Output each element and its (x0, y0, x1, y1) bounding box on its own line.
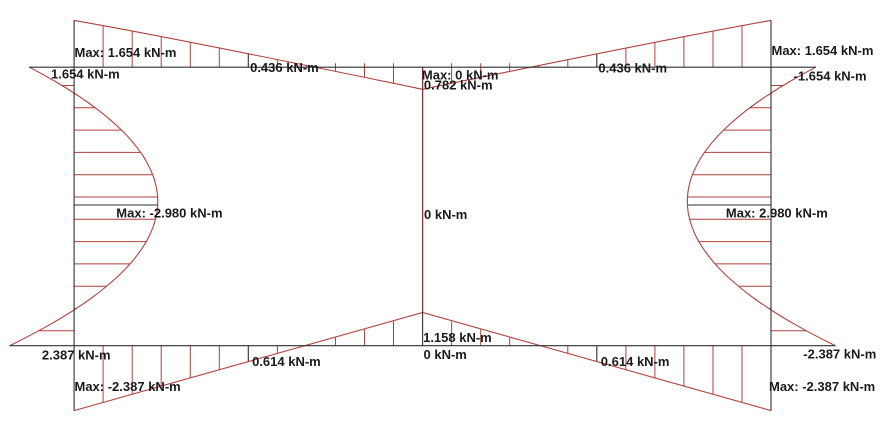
svg-text:Max: 1.654 kN-m: Max: 1.654 kN-m (772, 43, 874, 58)
svg-text:0.614 kN-m: 0.614 kN-m (601, 354, 670, 369)
svg-text:Max: -2.980 kN-m: Max: -2.980 kN-m (116, 206, 222, 221)
svg-text:0.782 kN-m: 0.782 kN-m (424, 77, 493, 92)
svg-text:1.654 kN-m: 1.654 kN-m (51, 66, 120, 81)
svg-text:Max: 2.980 kN-m: Max: 2.980 kN-m (726, 206, 828, 221)
svg-text:0 kN-m: 0 kN-m (424, 207, 467, 222)
svg-text:Max: 1.654 kN-m: Max: 1.654 kN-m (75, 45, 177, 60)
svg-text:0.436 kN-m: 0.436 kN-m (250, 60, 319, 75)
svg-text:Max: -2.387 kN-m: Max: -2.387 kN-m (75, 379, 181, 394)
svg-text:Max: -2.387 kN-m: Max: -2.387 kN-m (769, 379, 875, 394)
svg-text:0 kN-m: 0 kN-m (424, 347, 467, 362)
svg-text:-2.387 kN-m: -2.387 kN-m (803, 347, 876, 362)
svg-text:2.387 kN-m: 2.387 kN-m (42, 348, 111, 363)
svg-text:-1.654 kN-m: -1.654 kN-m (794, 68, 867, 83)
svg-text:0.436 kN-m: 0.436 kN-m (598, 60, 667, 75)
svg-text:1.158 kN-m: 1.158 kN-m (423, 330, 492, 345)
svg-text:0.614 kN-m: 0.614 kN-m (252, 354, 321, 369)
